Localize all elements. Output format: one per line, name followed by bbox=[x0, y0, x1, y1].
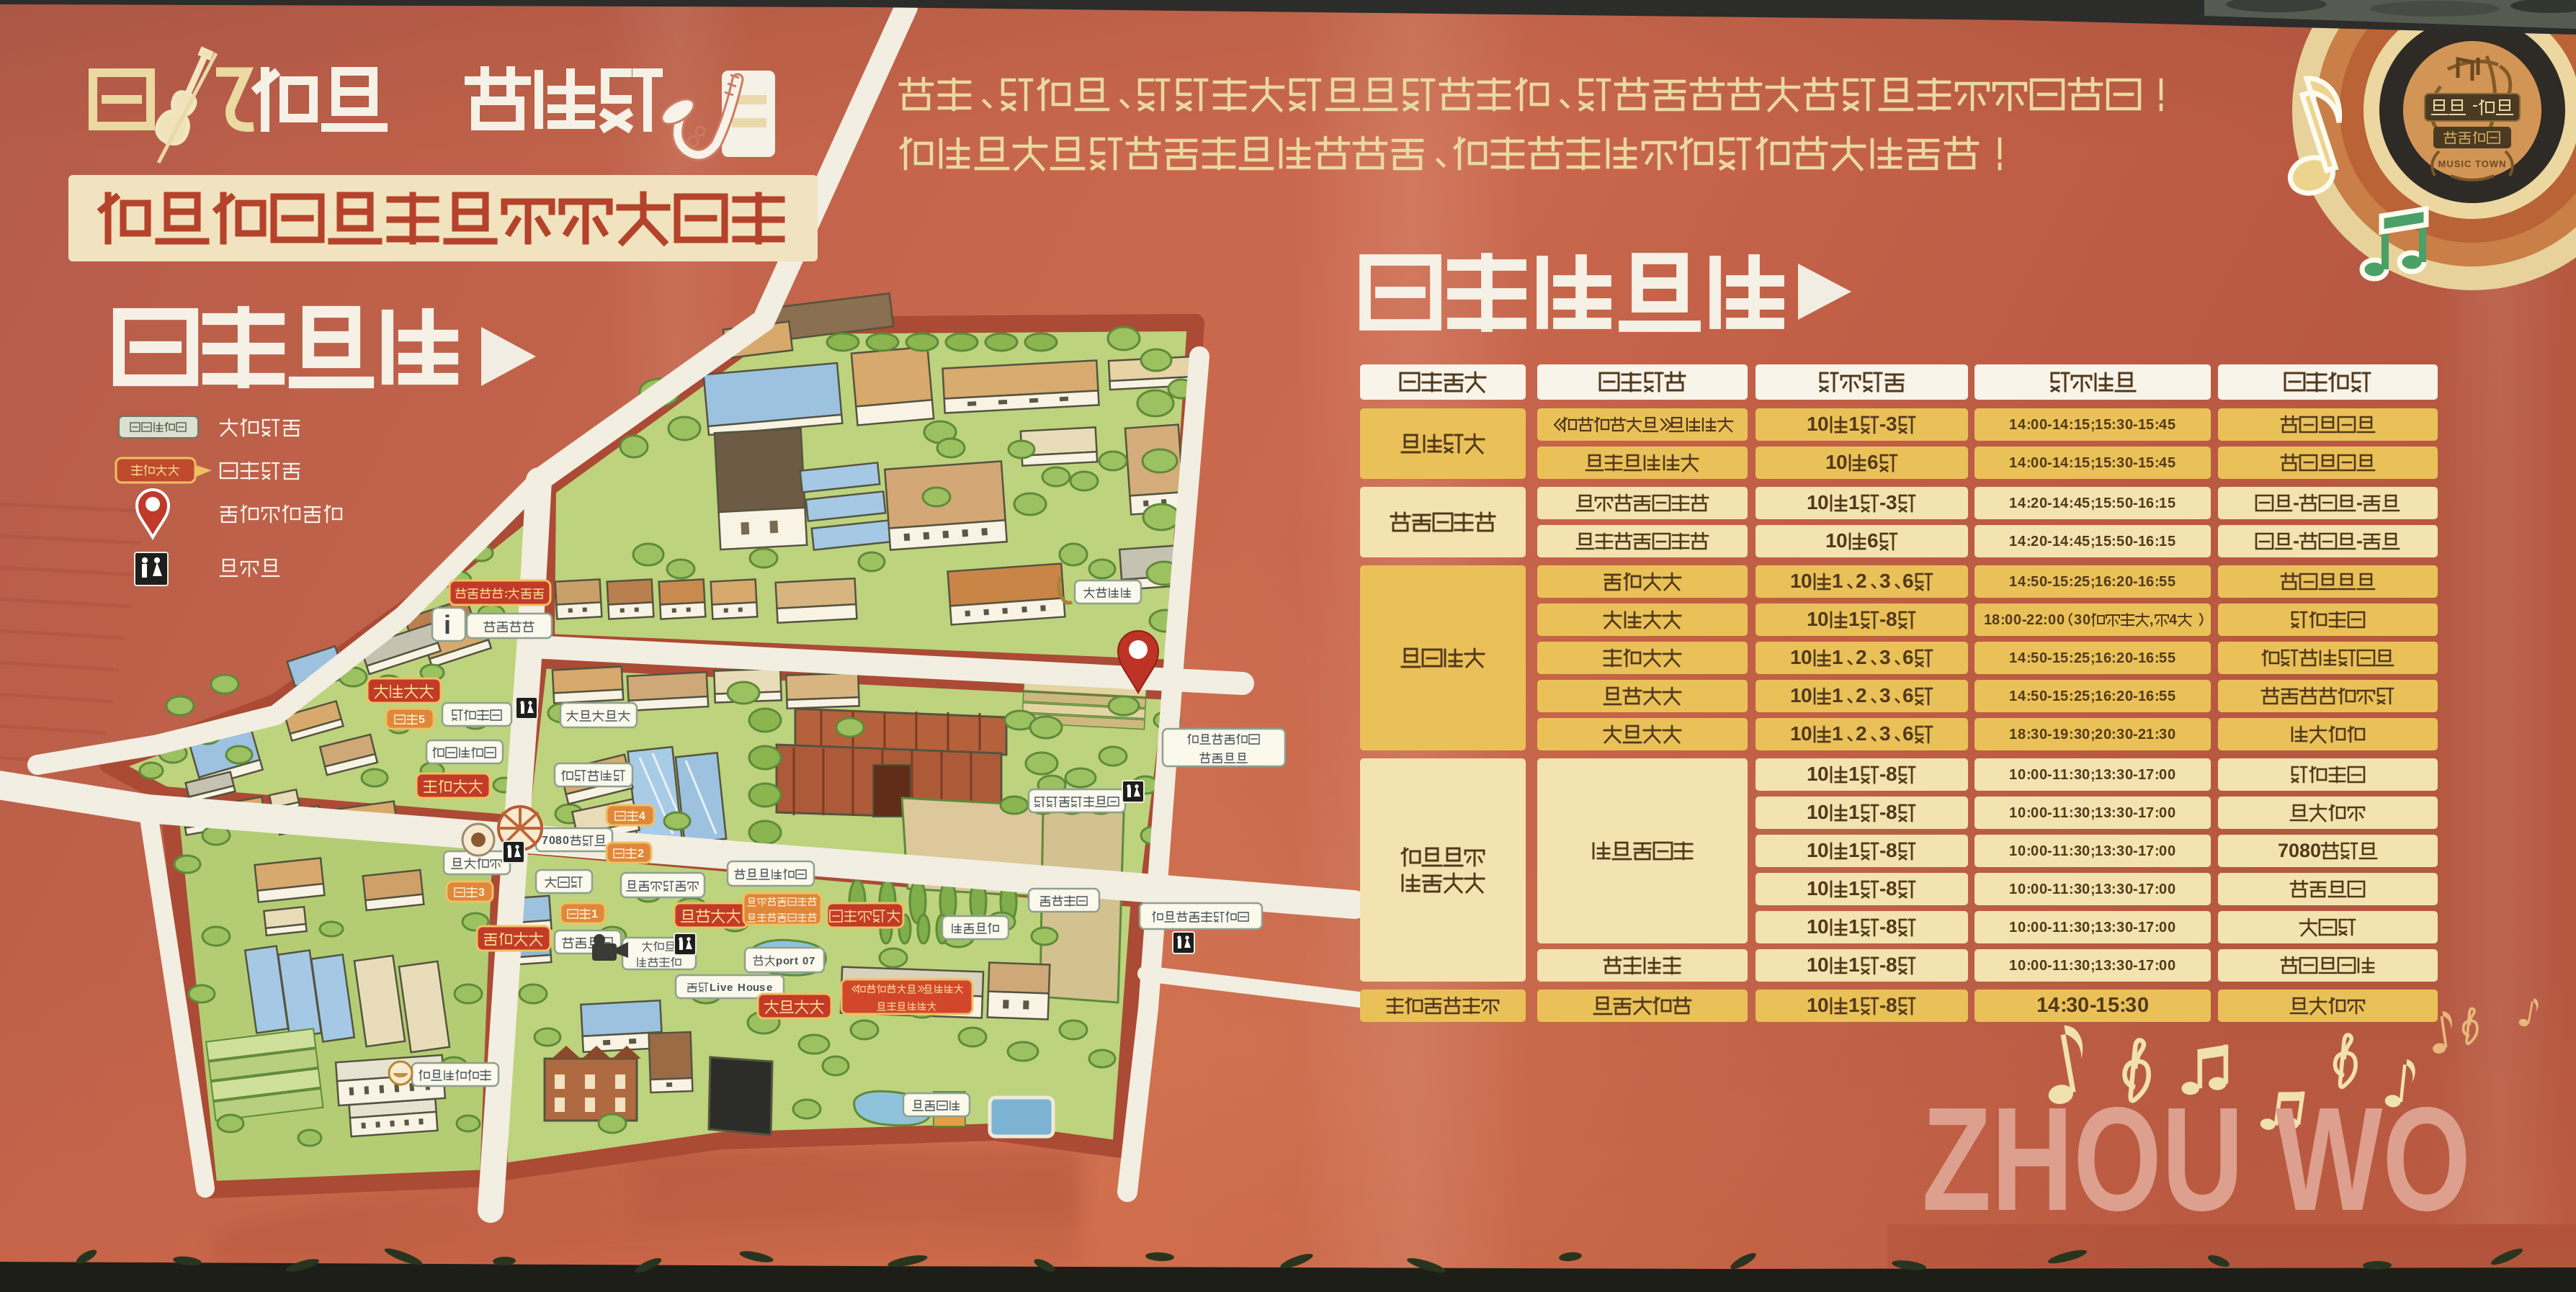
svg-text:1: 1 bbox=[2060, 881, 2068, 897]
svg-text:1: 1 bbox=[2095, 534, 2103, 549]
svg-text:3: 3 bbox=[2074, 920, 2082, 936]
svg-text:3: 3 bbox=[1886, 491, 1897, 513]
svg-text:5: 5 bbox=[2168, 455, 2175, 471]
svg-text:1: 1 bbox=[2052, 843, 2060, 859]
svg-text:5: 5 bbox=[2159, 688, 2167, 704]
svg-text:t: t bbox=[795, 955, 798, 967]
svg-text::: : bbox=[2043, 612, 2048, 628]
svg-text:0: 0 bbox=[1801, 646, 1812, 668]
svg-text:0: 0 bbox=[2078, 994, 2089, 1017]
svg-text::: : bbox=[2069, 843, 2074, 859]
svg-text:1: 1 bbox=[2052, 920, 2060, 936]
svg-text:3: 3 bbox=[1879, 570, 1891, 592]
svg-text:7: 7 bbox=[2146, 805, 2154, 821]
svg-text:L: L bbox=[710, 982, 716, 994]
svg-text:0: 0 bbox=[2159, 958, 2167, 974]
svg-text:4: 4 bbox=[2048, 994, 2060, 1017]
svg-text:-: - bbox=[1879, 608, 1886, 630]
svg-text:-: - bbox=[1879, 413, 1886, 435]
svg-text:1: 1 bbox=[1807, 877, 1818, 900]
svg-text:6: 6 bbox=[2146, 534, 2154, 549]
svg-text:3: 3 bbox=[2116, 920, 2124, 936]
svg-text:2: 2 bbox=[2095, 727, 2103, 743]
svg-text:6: 6 bbox=[1867, 451, 1879, 473]
svg-text:1: 1 bbox=[2074, 455, 2082, 471]
svg-text:5: 5 bbox=[2082, 455, 2090, 471]
svg-text:0: 0 bbox=[563, 835, 569, 847]
svg-text:1: 1 bbox=[2138, 881, 2146, 897]
svg-text:5: 5 bbox=[2031, 574, 2039, 590]
svg-text:0: 0 bbox=[2159, 920, 2167, 936]
svg-text:0: 0 bbox=[2039, 958, 2047, 974]
svg-text:6: 6 bbox=[2146, 495, 2154, 511]
svg-text:3: 3 bbox=[2074, 881, 2082, 897]
svg-text:1: 1 bbox=[1807, 839, 1818, 861]
svg-text:4: 4 bbox=[2060, 417, 2069, 433]
svg-text:1: 1 bbox=[2009, 574, 2017, 590]
svg-text:3: 3 bbox=[2116, 843, 2124, 859]
svg-text:0: 0 bbox=[2125, 650, 2133, 666]
svg-text:6: 6 bbox=[2103, 688, 2111, 704]
svg-text:0: 0 bbox=[2031, 881, 2039, 897]
svg-text:-: - bbox=[1879, 877, 1886, 900]
svg-text:i: i bbox=[717, 982, 720, 994]
svg-text:1: 1 bbox=[1832, 684, 1843, 706]
svg-text:0: 0 bbox=[2018, 958, 2026, 974]
svg-text:-: - bbox=[1879, 839, 1886, 861]
svg-text:1: 1 bbox=[2009, 417, 2017, 433]
svg-text:7: 7 bbox=[2146, 767, 2154, 783]
svg-text:2: 2 bbox=[2031, 534, 2039, 549]
svg-text:5: 5 bbox=[2082, 417, 2090, 433]
svg-text:3: 3 bbox=[478, 887, 485, 899]
svg-text:0: 0 bbox=[2018, 805, 2026, 821]
svg-text:1: 1 bbox=[2095, 805, 2103, 821]
svg-text:1: 1 bbox=[2060, 920, 2068, 936]
svg-text:2: 2 bbox=[2116, 688, 2124, 704]
svg-text:1: 1 bbox=[2052, 958, 2060, 974]
svg-text:1: 1 bbox=[2009, 650, 2017, 666]
svg-text::: : bbox=[2111, 767, 2116, 783]
svg-text:5: 5 bbox=[2082, 650, 2090, 666]
svg-text:MUSIC TOWN: MUSIC TOWN bbox=[2438, 158, 2507, 169]
svg-text:5: 5 bbox=[2082, 688, 2090, 704]
svg-text:8: 8 bbox=[2018, 727, 2026, 743]
svg-text:-: - bbox=[2047, 650, 2052, 666]
svg-text:3: 3 bbox=[2103, 920, 2111, 936]
svg-text:5: 5 bbox=[2060, 650, 2068, 666]
svg-text:0: 0 bbox=[2168, 805, 2175, 821]
svg-text:0: 0 bbox=[2125, 417, 2133, 433]
svg-text:2: 2 bbox=[1856, 646, 1867, 668]
svg-text::: : bbox=[2069, 727, 2074, 743]
svg-text:1: 1 bbox=[2095, 881, 2103, 897]
svg-text:5: 5 bbox=[2103, 455, 2111, 471]
svg-text:1: 1 bbox=[2052, 455, 2060, 471]
svg-text:1: 1 bbox=[2052, 881, 2060, 897]
svg-text:6: 6 bbox=[2103, 650, 2111, 666]
svg-text:0: 0 bbox=[2039, 920, 2047, 936]
svg-text:0: 0 bbox=[2031, 958, 2039, 974]
svg-text:-: - bbox=[2047, 688, 2052, 704]
svg-text:6: 6 bbox=[2103, 574, 2111, 590]
svg-text:0: 0 bbox=[2018, 767, 2026, 783]
svg-text:0: 0 bbox=[1817, 877, 1829, 900]
svg-text:1: 1 bbox=[2052, 688, 2060, 704]
svg-text:7: 7 bbox=[2278, 840, 2289, 861]
svg-text:3: 3 bbox=[2074, 958, 2082, 974]
svg-text:4: 4 bbox=[2018, 455, 2026, 471]
svg-text:1: 1 bbox=[2138, 688, 2146, 704]
svg-text:1: 1 bbox=[2009, 495, 2017, 511]
svg-text:3: 3 bbox=[2116, 881, 2124, 897]
svg-text:8: 8 bbox=[1992, 612, 2000, 628]
svg-text::: : bbox=[2069, 455, 2074, 471]
svg-text:0: 0 bbox=[2082, 958, 2090, 974]
svg-text:1: 1 bbox=[2095, 495, 2103, 511]
svg-text:1: 1 bbox=[1790, 722, 1802, 745]
svg-text:6: 6 bbox=[2146, 650, 2154, 666]
svg-text:2: 2 bbox=[2035, 612, 2043, 628]
svg-text:0: 0 bbox=[2168, 881, 2175, 897]
svg-text:0: 0 bbox=[2082, 727, 2090, 743]
svg-text:1: 1 bbox=[1807, 954, 1818, 976]
svg-text:5: 5 bbox=[2103, 495, 2111, 511]
svg-text:0: 0 bbox=[2125, 958, 2133, 974]
svg-text:0: 0 bbox=[2005, 612, 2013, 628]
svg-text:5: 5 bbox=[2060, 688, 2068, 704]
svg-text:1: 1 bbox=[2052, 495, 2060, 511]
svg-text:8: 8 bbox=[1886, 839, 1897, 861]
svg-text:2: 2 bbox=[2074, 574, 2082, 590]
svg-text:1: 1 bbox=[1984, 612, 1992, 628]
svg-text:p: p bbox=[776, 955, 782, 967]
svg-text:1: 1 bbox=[2095, 767, 2103, 783]
svg-text:-: - bbox=[2133, 688, 2138, 704]
svg-text:0: 0 bbox=[549, 835, 555, 847]
svg-text::: : bbox=[2111, 455, 2116, 471]
svg-text:4: 4 bbox=[639, 810, 645, 822]
svg-text:0: 0 bbox=[2039, 688, 2047, 704]
svg-text:0: 0 bbox=[2125, 881, 2133, 897]
svg-text:-: - bbox=[2133, 958, 2138, 974]
svg-text:1: 1 bbox=[1807, 763, 1818, 785]
svg-text:1: 1 bbox=[2138, 650, 2146, 666]
svg-text:1: 1 bbox=[2146, 727, 2154, 743]
svg-text:0: 0 bbox=[2082, 805, 2090, 821]
svg-text:0: 0 bbox=[2159, 843, 2167, 859]
svg-text:-: - bbox=[1879, 763, 1886, 785]
svg-text:3: 3 bbox=[1886, 413, 1897, 435]
svg-text:4: 4 bbox=[2018, 650, 2026, 666]
svg-text:-: - bbox=[2133, 767, 2138, 783]
svg-text:r: r bbox=[790, 955, 794, 967]
svg-text:3: 3 bbox=[2116, 958, 2124, 974]
svg-text::: : bbox=[2111, 958, 2116, 974]
svg-text:e: e bbox=[727, 982, 733, 994]
svg-text:1: 1 bbox=[1848, 608, 1860, 630]
svg-text::: : bbox=[2069, 767, 2074, 783]
svg-text:3: 3 bbox=[2103, 958, 2111, 974]
svg-text:3: 3 bbox=[2116, 767, 2124, 783]
svg-text:0: 0 bbox=[2103, 727, 2111, 743]
svg-text:4: 4 bbox=[2018, 688, 2026, 704]
svg-text:0: 0 bbox=[2125, 767, 2133, 783]
svg-text:-: - bbox=[2047, 920, 2052, 936]
svg-text::: : bbox=[2111, 881, 2116, 897]
svg-text:0: 0 bbox=[2125, 688, 2133, 704]
svg-text:0: 0 bbox=[2083, 612, 2090, 628]
svg-text:-: - bbox=[2047, 958, 2052, 974]
svg-text:3: 3 bbox=[2116, 805, 2124, 821]
svg-text:0: 0 bbox=[2039, 417, 2047, 433]
svg-text:0: 0 bbox=[2082, 881, 2090, 897]
svg-text:1: 1 bbox=[2009, 727, 2017, 743]
svg-text:0: 0 bbox=[2310, 840, 2321, 861]
svg-text:1: 1 bbox=[2095, 958, 2103, 974]
svg-text:-: - bbox=[2133, 455, 2138, 471]
svg-text:0: 0 bbox=[2137, 994, 2149, 1017]
svg-text::: : bbox=[2111, 534, 2116, 549]
svg-text:0: 0 bbox=[2125, 455, 2133, 471]
svg-text:4: 4 bbox=[2018, 534, 2026, 549]
svg-text:5: 5 bbox=[2116, 495, 2124, 511]
svg-text:0: 0 bbox=[2125, 495, 2133, 511]
svg-text:3: 3 bbox=[2074, 727, 2082, 743]
svg-text:1: 1 bbox=[1848, 915, 1860, 938]
svg-text:0: 0 bbox=[2031, 805, 2039, 821]
svg-text:0: 0 bbox=[1836, 451, 1848, 473]
svg-text:1: 1 bbox=[2009, 534, 2017, 549]
svg-text:0: 0 bbox=[1801, 722, 1812, 745]
svg-text:0: 0 bbox=[2125, 920, 2133, 936]
svg-text:1: 1 bbox=[1790, 684, 1802, 706]
svg-text:0: 0 bbox=[2031, 455, 2039, 471]
svg-text:7: 7 bbox=[542, 835, 548, 847]
svg-text:1: 1 bbox=[2036, 994, 2048, 1017]
svg-text:2: 2 bbox=[1856, 684, 1867, 706]
svg-text:-: - bbox=[2047, 843, 2052, 859]
svg-text::: : bbox=[2069, 805, 2074, 821]
svg-text:0: 0 bbox=[2039, 534, 2047, 549]
svg-text::: : bbox=[2069, 417, 2074, 433]
svg-text:3: 3 bbox=[2103, 881, 2111, 897]
svg-text:0: 0 bbox=[2039, 805, 2047, 821]
svg-text:-: - bbox=[2133, 534, 2138, 549]
svg-text::: : bbox=[2111, 495, 2116, 511]
svg-text:9: 9 bbox=[2060, 727, 2068, 743]
svg-text:1: 1 bbox=[2052, 727, 2060, 743]
svg-text:-: - bbox=[2047, 574, 2052, 590]
svg-text:5: 5 bbox=[2168, 417, 2175, 433]
svg-text:0: 0 bbox=[2048, 612, 2056, 628]
svg-text:5: 5 bbox=[2168, 534, 2175, 549]
svg-text:1: 1 bbox=[2060, 805, 2068, 821]
svg-text:0: 0 bbox=[2159, 881, 2167, 897]
svg-text:0: 0 bbox=[2125, 534, 2133, 549]
svg-text:3: 3 bbox=[2066, 994, 2078, 1017]
svg-text:1: 1 bbox=[2052, 534, 2060, 549]
svg-text:0: 0 bbox=[2057, 612, 2065, 628]
svg-text:2: 2 bbox=[2116, 650, 2124, 666]
svg-text:1: 1 bbox=[1825, 529, 1837, 552]
svg-text:-: - bbox=[2133, 495, 2138, 511]
svg-text:-: - bbox=[2133, 417, 2138, 433]
svg-text:5: 5 bbox=[2108, 994, 2119, 1017]
svg-text:7: 7 bbox=[2146, 920, 2154, 936]
svg-text:0: 0 bbox=[2125, 843, 2133, 859]
svg-text:2: 2 bbox=[2138, 727, 2146, 743]
svg-text:1: 1 bbox=[2138, 843, 2146, 859]
svg-text:4: 4 bbox=[2018, 574, 2026, 590]
svg-text:-: - bbox=[2047, 881, 2052, 897]
svg-text:-: - bbox=[2293, 492, 2299, 513]
svg-text:0: 0 bbox=[2031, 767, 2039, 783]
svg-text:H: H bbox=[738, 982, 746, 994]
svg-text:1: 1 bbox=[2009, 455, 2017, 471]
svg-text::: : bbox=[2111, 417, 2116, 433]
svg-text:7: 7 bbox=[2146, 881, 2154, 897]
svg-text:0: 0 bbox=[2082, 843, 2090, 859]
svg-text:8: 8 bbox=[2299, 840, 2310, 861]
svg-text:1: 1 bbox=[2095, 417, 2103, 433]
svg-text:1: 1 bbox=[2138, 958, 2146, 974]
svg-text:4: 4 bbox=[2159, 455, 2168, 471]
svg-text:-: - bbox=[2047, 767, 2052, 783]
svg-text:0: 0 bbox=[2289, 840, 2299, 861]
svg-text:0: 0 bbox=[2031, 920, 2039, 936]
svg-text:6: 6 bbox=[2146, 688, 2154, 704]
svg-text:1: 1 bbox=[1848, 801, 1860, 823]
svg-text:0: 0 bbox=[2039, 843, 2047, 859]
svg-text:5: 5 bbox=[2103, 417, 2111, 433]
svg-text:0: 0 bbox=[1836, 529, 1848, 552]
svg-text:8: 8 bbox=[1886, 801, 1897, 823]
svg-text:0: 0 bbox=[2031, 843, 2039, 859]
svg-text:8: 8 bbox=[1886, 954, 1897, 976]
svg-text:5: 5 bbox=[2168, 650, 2175, 666]
svg-text:1: 1 bbox=[1848, 994, 1860, 1016]
svg-text:2: 2 bbox=[2074, 688, 2082, 704]
svg-text:1: 1 bbox=[2095, 843, 2103, 859]
svg-text:1: 1 bbox=[1807, 801, 1818, 823]
svg-text:1: 1 bbox=[2009, 805, 2017, 821]
svg-text:3: 3 bbox=[2116, 455, 2124, 471]
svg-text:u: u bbox=[753, 982, 759, 994]
svg-text:4: 4 bbox=[2060, 455, 2069, 471]
svg-text:1: 1 bbox=[2009, 958, 2017, 974]
svg-text:3: 3 bbox=[2116, 727, 2124, 743]
svg-text:3: 3 bbox=[1879, 684, 1891, 706]
svg-text:6: 6 bbox=[2146, 574, 2154, 590]
svg-text::: : bbox=[2111, 650, 2116, 666]
svg-text:4: 4 bbox=[2159, 417, 2168, 433]
svg-text:6: 6 bbox=[1867, 529, 1879, 552]
svg-text:0: 0 bbox=[2013, 612, 2021, 628]
svg-text:1: 1 bbox=[1807, 491, 1818, 513]
svg-text:0: 0 bbox=[1817, 413, 1829, 435]
svg-text:-: - bbox=[2133, 574, 2138, 590]
svg-text:4: 4 bbox=[2060, 534, 2069, 549]
svg-text:-: - bbox=[2293, 530, 2299, 552]
svg-text:-: - bbox=[2047, 727, 2052, 743]
svg-text:-: - bbox=[2047, 534, 2052, 549]
svg-text:6: 6 bbox=[1902, 684, 1914, 706]
svg-text:3: 3 bbox=[2074, 805, 2082, 821]
svg-text:5: 5 bbox=[2103, 534, 2111, 549]
svg-text:v: v bbox=[720, 982, 727, 994]
svg-text:0: 0 bbox=[2125, 574, 2133, 590]
svg-text::: : bbox=[2069, 534, 2074, 549]
svg-text:6: 6 bbox=[1902, 570, 1914, 592]
svg-text:1: 1 bbox=[2138, 574, 2146, 590]
svg-text:0: 0 bbox=[1817, 801, 1829, 823]
svg-text:8: 8 bbox=[1886, 877, 1897, 900]
svg-text::: : bbox=[2111, 727, 2116, 743]
svg-text:-: - bbox=[2047, 805, 2052, 821]
svg-text::: : bbox=[2069, 688, 2074, 704]
svg-text:1: 1 bbox=[2009, 688, 2017, 704]
svg-text:0: 0 bbox=[2039, 495, 2047, 511]
svg-text:-: - bbox=[2133, 805, 2138, 821]
svg-text:4: 4 bbox=[2060, 495, 2069, 511]
svg-text:0: 0 bbox=[2018, 920, 2026, 936]
svg-text:5: 5 bbox=[2168, 574, 2175, 590]
svg-text:o: o bbox=[783, 955, 790, 967]
svg-text:5: 5 bbox=[2146, 417, 2154, 433]
svg-text:5: 5 bbox=[2168, 688, 2175, 704]
svg-text:0: 0 bbox=[2082, 767, 2090, 783]
svg-text:0: 0 bbox=[1817, 994, 1829, 1016]
svg-text:5: 5 bbox=[2159, 574, 2167, 590]
svg-text:1: 1 bbox=[1807, 608, 1818, 630]
svg-text:0: 0 bbox=[2168, 958, 2175, 974]
svg-text:0: 0 bbox=[2168, 767, 2175, 783]
svg-text:5: 5 bbox=[2031, 688, 2039, 704]
svg-text:-: - bbox=[1879, 801, 1886, 823]
svg-text:2: 2 bbox=[2116, 574, 2124, 590]
svg-text:1: 1 bbox=[2095, 455, 2103, 471]
svg-text:1: 1 bbox=[2096, 994, 2107, 1017]
svg-text::: : bbox=[2111, 843, 2116, 859]
svg-text::: : bbox=[2111, 805, 2116, 821]
svg-text:0: 0 bbox=[2039, 881, 2047, 897]
svg-text:1: 1 bbox=[1807, 915, 1818, 938]
svg-text:1: 1 bbox=[1825, 451, 1837, 473]
svg-text:0: 0 bbox=[1817, 839, 1829, 861]
svg-text:1: 1 bbox=[2074, 417, 2082, 433]
svg-text::: : bbox=[2069, 650, 2074, 666]
svg-text:1: 1 bbox=[2052, 417, 2060, 433]
svg-text:0: 0 bbox=[2039, 727, 2047, 743]
svg-text:7: 7 bbox=[2146, 843, 2154, 859]
svg-text:e: e bbox=[766, 982, 772, 994]
svg-text:-: - bbox=[1879, 994, 1886, 1016]
svg-text:0: 0 bbox=[1801, 684, 1812, 706]
svg-text:5: 5 bbox=[2146, 455, 2154, 471]
svg-text:0: 0 bbox=[2168, 843, 2175, 859]
svg-text:4: 4 bbox=[2018, 495, 2026, 511]
svg-text:3: 3 bbox=[2103, 767, 2111, 783]
svg-text:1: 1 bbox=[2138, 920, 2146, 936]
svg-text:-: - bbox=[1879, 491, 1886, 513]
svg-text:1: 1 bbox=[2009, 843, 2017, 859]
svg-text:3: 3 bbox=[2125, 994, 2137, 1017]
svg-text::: : bbox=[2069, 495, 2074, 511]
svg-text:2: 2 bbox=[2031, 495, 2039, 511]
svg-text:1: 1 bbox=[1790, 570, 1802, 592]
svg-text:5: 5 bbox=[2168, 495, 2175, 511]
